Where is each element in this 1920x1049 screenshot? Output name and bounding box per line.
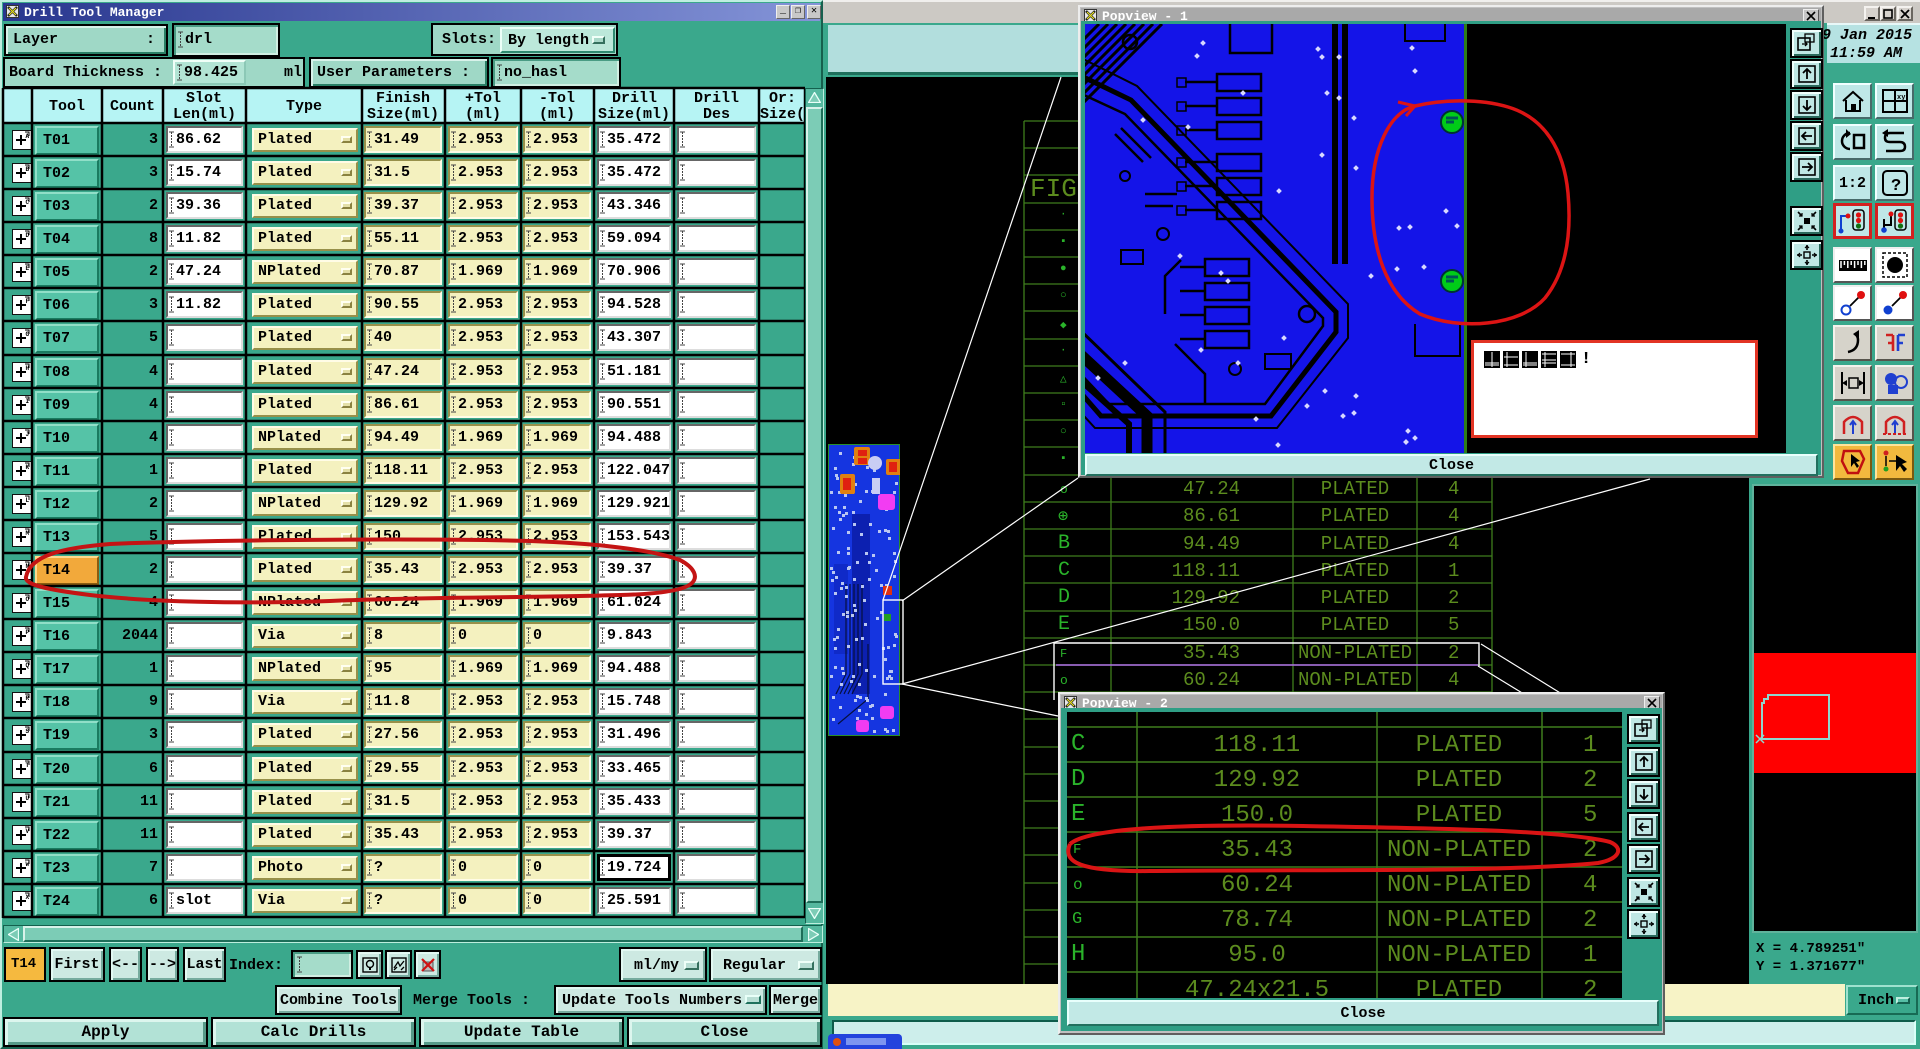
svg-text:xy: xy	[1897, 94, 1906, 102]
svg-text:?: ?	[1891, 177, 1901, 196]
